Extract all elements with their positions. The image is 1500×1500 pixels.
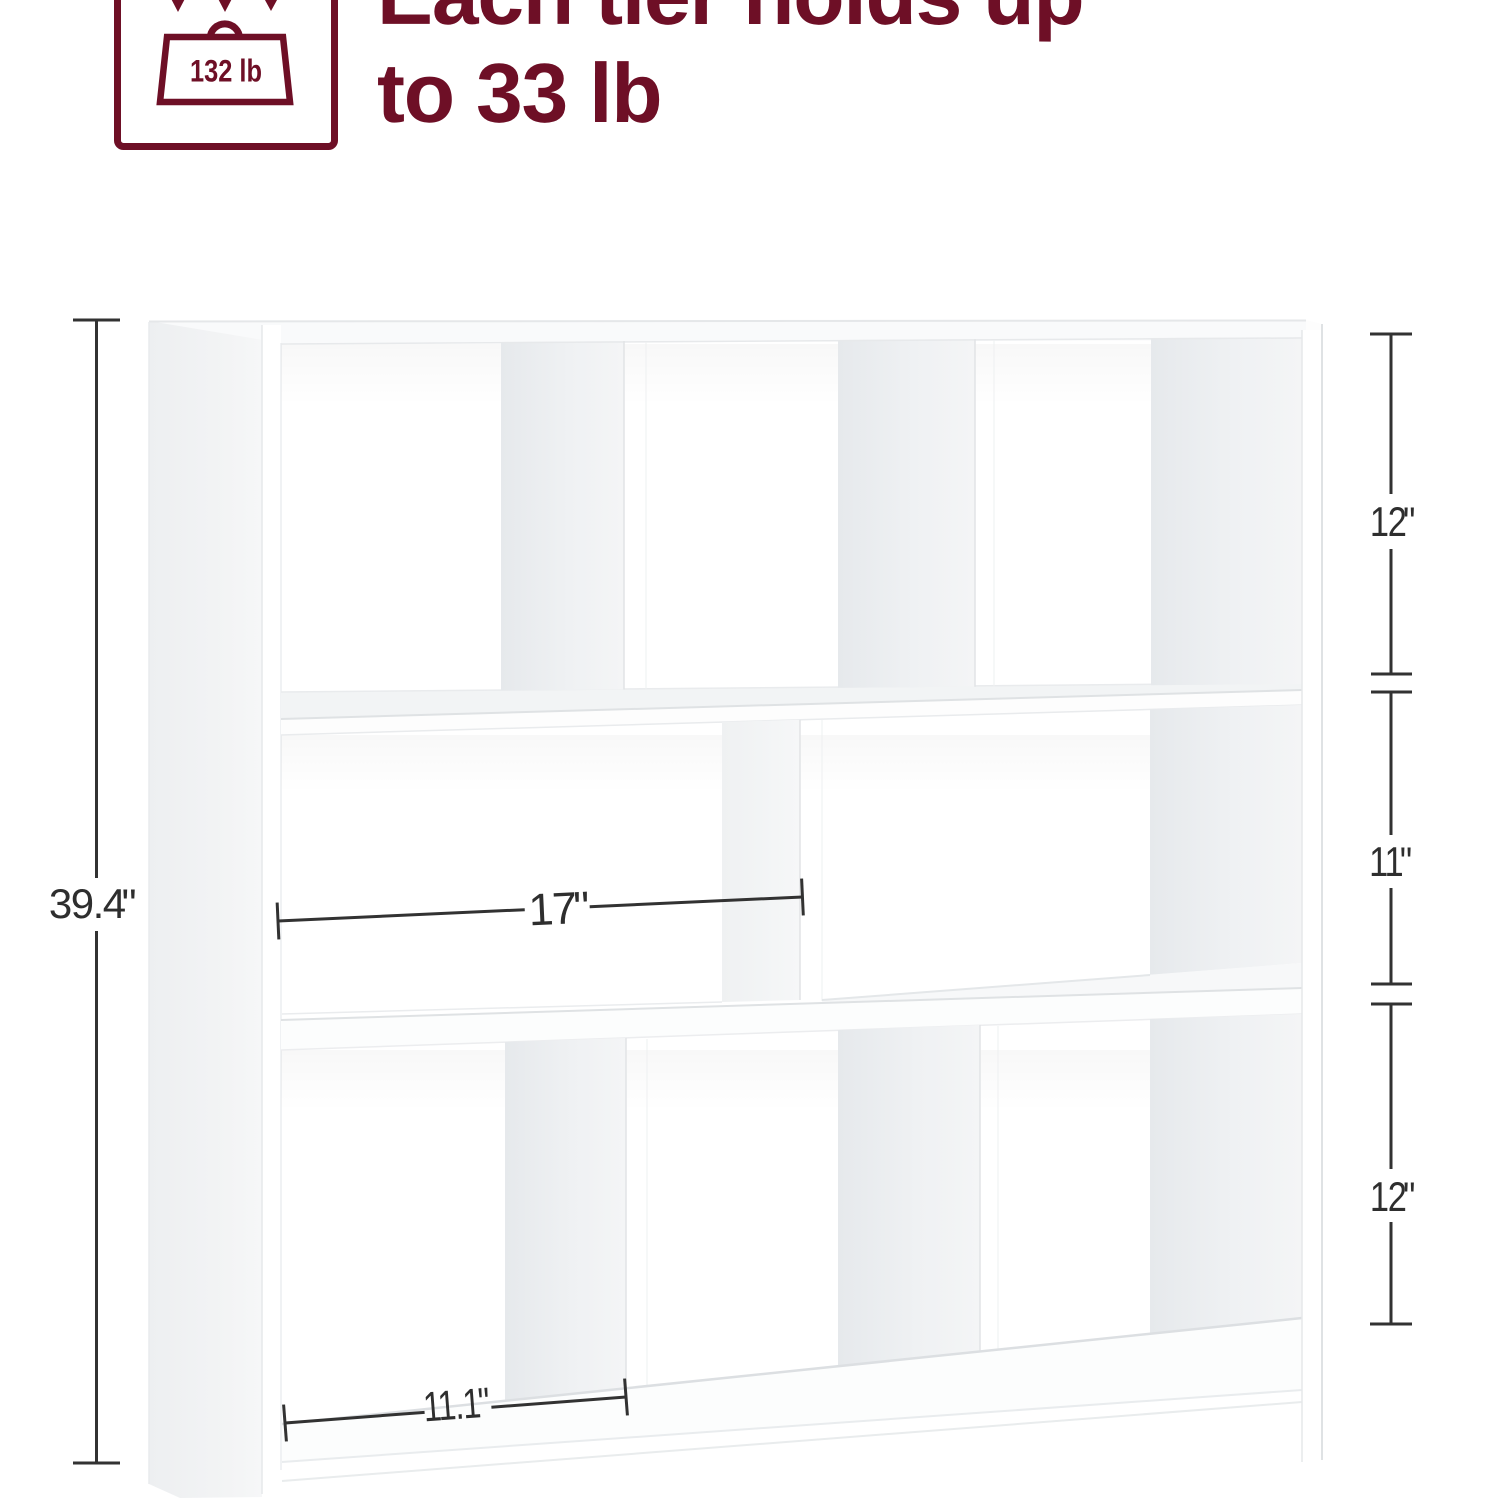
svg-text:12": 12" (1370, 499, 1414, 546)
svg-text:11": 11" (1369, 839, 1411, 886)
svg-text:11.1": 11.1" (421, 1379, 490, 1431)
svg-text:12": 12" (1370, 1174, 1414, 1221)
svg-text:132 lb: 132 lb (190, 53, 262, 89)
svg-text:39.4": 39.4" (49, 880, 136, 927)
svg-text:17": 17" (527, 882, 589, 936)
